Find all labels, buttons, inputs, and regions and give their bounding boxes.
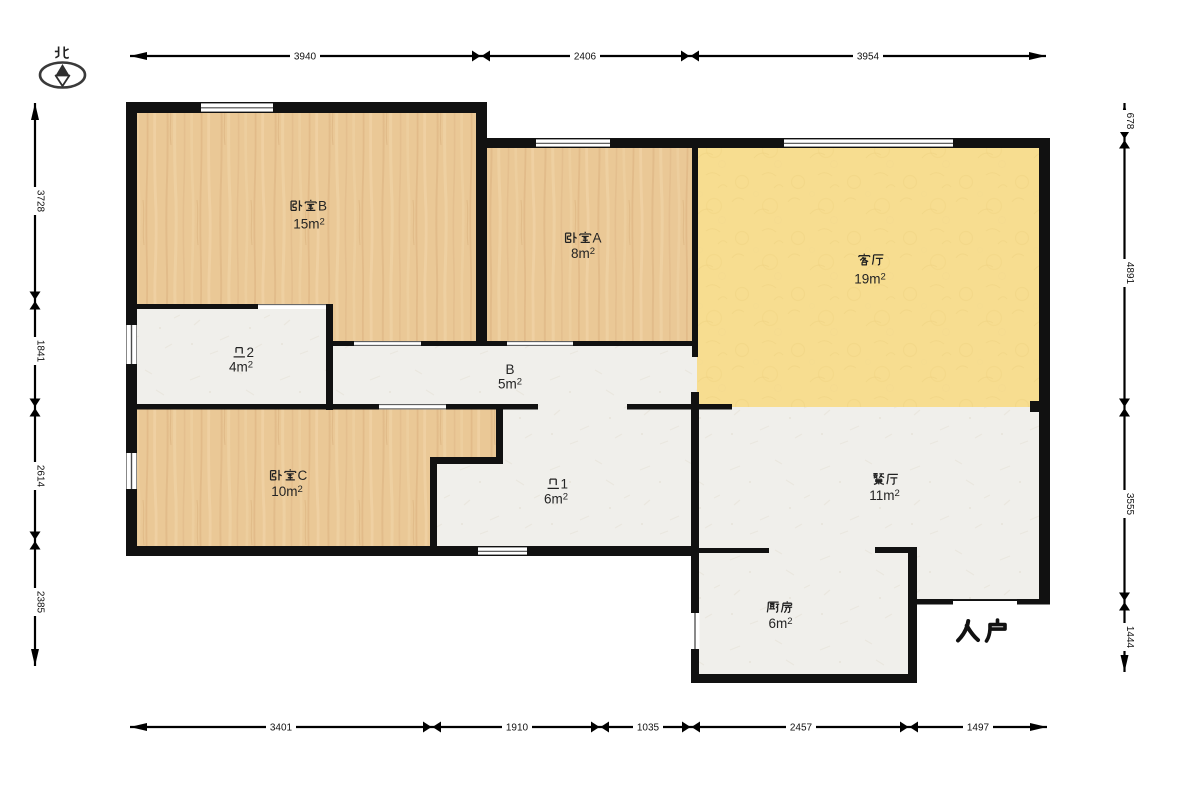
svg-text:1910: 1910 — [506, 723, 529, 734]
svg-text:3555: 3555 — [1124, 493, 1135, 516]
svg-text:2: 2 — [247, 345, 255, 360]
svg-text:3401: 3401 — [270, 723, 293, 734]
svg-text:2457: 2457 — [790, 723, 813, 734]
svg-text:A: A — [593, 230, 602, 245]
svg-text:B: B — [505, 362, 514, 377]
svg-text:1: 1 — [561, 476, 569, 491]
svg-text:2385: 2385 — [35, 591, 46, 614]
svg-text:B: B — [318, 198, 327, 213]
svg-text:678: 678 — [1124, 113, 1135, 130]
svg-text:1497: 1497 — [967, 723, 990, 734]
svg-text:3940: 3940 — [294, 52, 317, 63]
svg-text:2406: 2406 — [574, 52, 597, 63]
svg-text:C: C — [298, 468, 308, 483]
svg-text:1444: 1444 — [1124, 626, 1135, 649]
svg-text:1841: 1841 — [35, 340, 46, 363]
svg-text:4891: 4891 — [1124, 262, 1135, 285]
svg-text:2614: 2614 — [35, 465, 46, 488]
svg-text:3728: 3728 — [35, 190, 46, 213]
svg-text:3954: 3954 — [857, 52, 880, 63]
svg-text:1035: 1035 — [637, 723, 660, 734]
